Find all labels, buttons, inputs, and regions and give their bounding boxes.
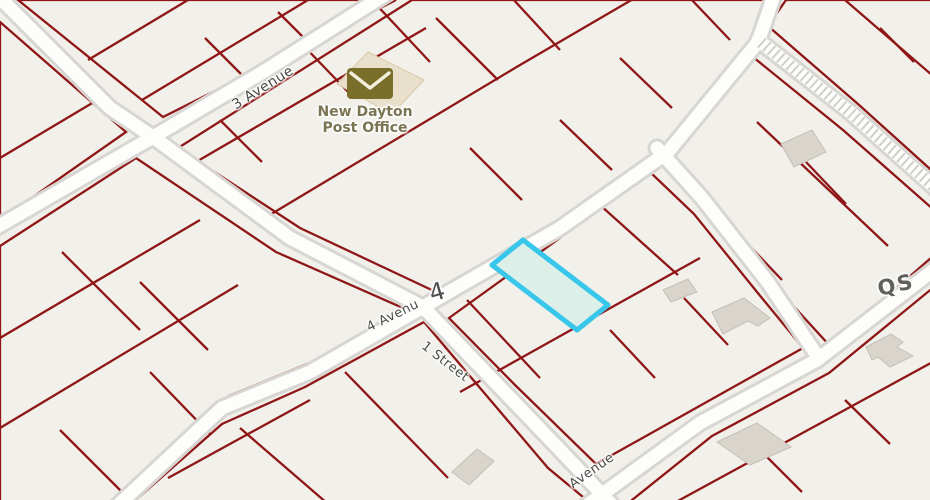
street-4-avenue (100, 0, 778, 500)
building (781, 130, 826, 167)
post-office-envelope-icon (347, 68, 393, 99)
building (452, 449, 494, 485)
building (717, 423, 791, 465)
building (866, 334, 913, 367)
map-layers (0, 0, 930, 500)
building (712, 298, 770, 334)
street-network (0, 0, 930, 500)
map-canvas[interactable]: 3 Avenue New Dayton Post Office 4 Avenu … (0, 0, 930, 500)
highlighted-parcel[interactable] (492, 240, 608, 330)
building (663, 279, 697, 302)
